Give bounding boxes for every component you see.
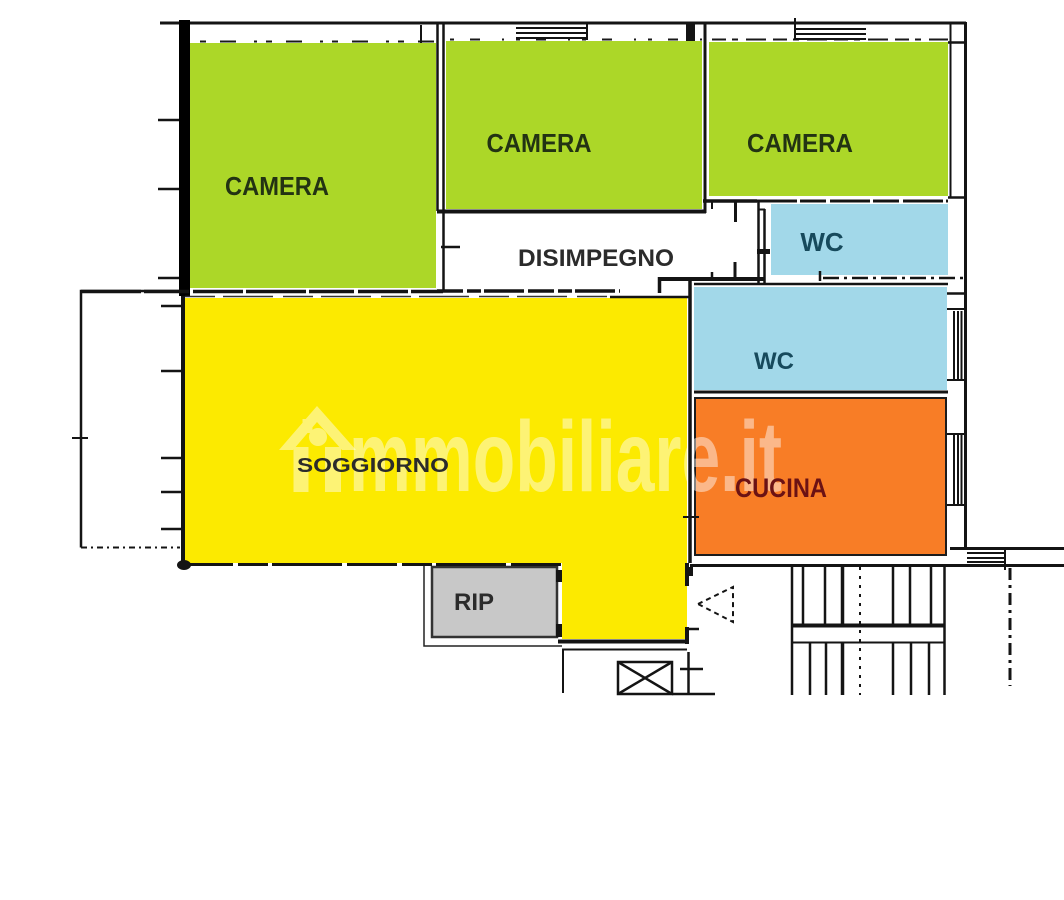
svg-text:CAMERA: CAMERA [487, 128, 592, 158]
svg-text:RIP: RIP [454, 589, 494, 616]
svg-text:CAMERA: CAMERA [225, 171, 329, 201]
svg-text:SOGGIORNO: SOGGIORNO [297, 455, 449, 477]
svg-text:CUCINA: CUCINA [735, 473, 827, 503]
svg-text:WC: WC [800, 227, 844, 257]
svg-text:DISIMPEGNO: DISIMPEGNO [518, 245, 674, 272]
svg-text:WC: WC [754, 348, 794, 375]
svg-text:CAMERA: CAMERA [747, 128, 853, 158]
